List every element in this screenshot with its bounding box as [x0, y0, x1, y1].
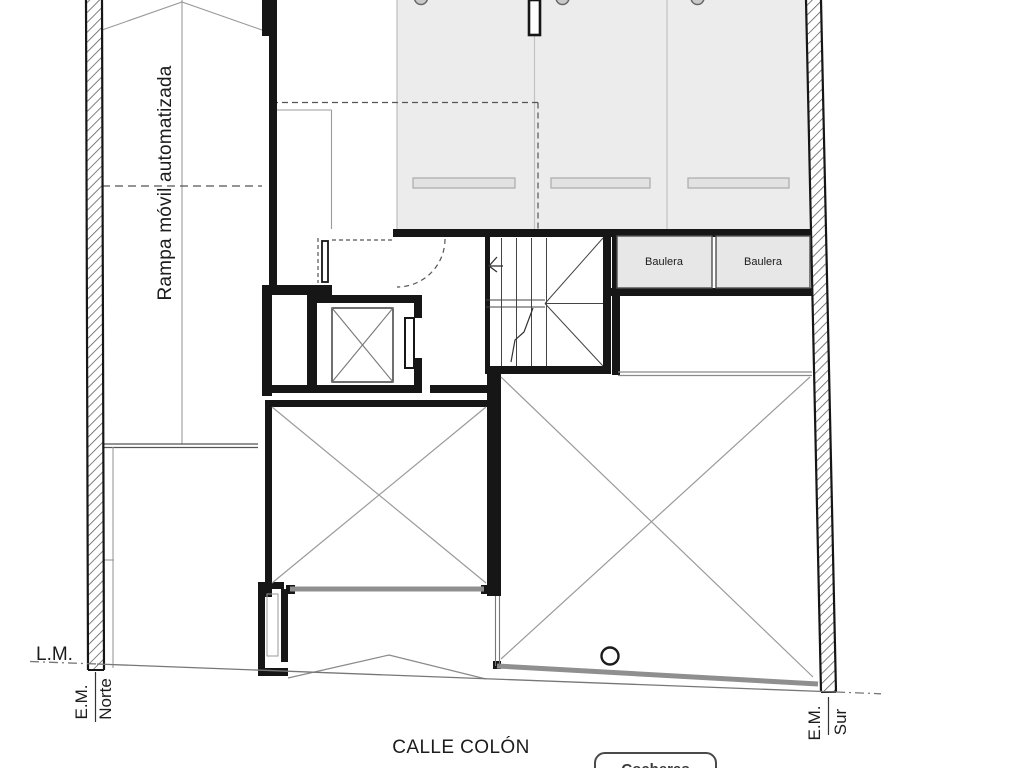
void-room-right [501, 377, 813, 677]
floor-plan-canvas: Rampa móvil automatizada Baulera Baulera… [0, 0, 1024, 768]
em-norte-axis-label: E.M. [72, 685, 92, 720]
left-boundary-wall [86, 0, 104, 670]
baulera-1-label: Baulera [645, 256, 683, 268]
em-sur-direction-label: Sur [831, 709, 851, 735]
elevator [332, 308, 414, 382]
stair [486, 238, 603, 366]
ramp-label: Rampa móvil automatizada [155, 65, 177, 300]
street-label: CALLE COLÓN [392, 737, 529, 759]
right-boundary-wall [806, 0, 836, 692]
baulera-2-label: Baulera [744, 256, 782, 268]
void-room-left [272, 407, 486, 583]
em-norte-direction-label: Norte [96, 678, 116, 720]
lm-label: L.M. [36, 644, 73, 666]
em-sur-axis-label: E.M. [805, 706, 825, 741]
property-lines [30, 662, 881, 736]
storage-room-edge [618, 372, 812, 376]
garage-doors [267, 589, 818, 684]
cocheras-button[interactable]: Cocheras [594, 752, 717, 768]
parking-area [270, 0, 811, 230]
plan-linework [0, 0, 1024, 768]
corridor-details [318, 238, 445, 287]
ramp [102, 0, 262, 668]
